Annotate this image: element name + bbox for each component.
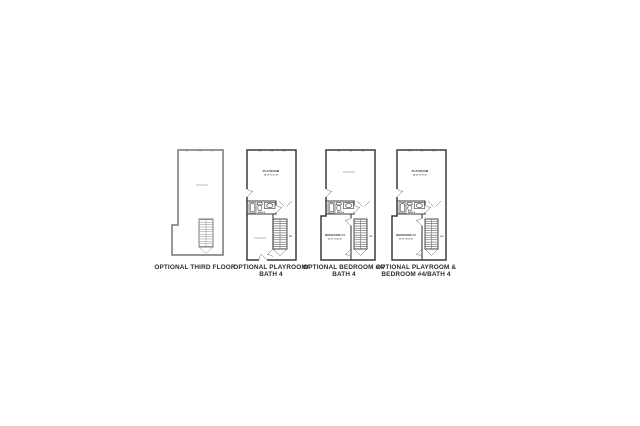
room-label-bath4: BATH 4 [258,211,266,214]
plan-optional-playroom-bedroom4-bath4: PLAYROOM 16'-4" X 17'-0" BATH 4 BEDROOM … [391,149,447,261]
room-label-storage: STORAGE [196,184,209,187]
floor-plan-sheet: STORAGE [0,0,640,426]
room-dims-bedroom4: 11'-0" X 12'-0" [399,238,413,240]
room-label-playroom: PLAYROOM [412,169,429,173]
caption-playroom-bedroom4-bath4: OPTIONAL PLAYROOM & BEDROOM #4/BATH 4 [358,265,474,279]
staircase [354,219,367,256]
room-dims-playroom: 16'-4" X 17'-0" [264,174,279,177]
room-label-bedroom4: BEDROOM #4 [325,233,345,237]
playroom-bath4-drawing: PLAYROOM 16'-4" X 17'-0" BATH 4 STORAGE … [246,149,297,261]
toilet [258,203,263,205]
room-label-bath4: BATH 4 [408,211,416,214]
toilet [337,203,342,205]
staircase [199,219,213,254]
room-label-storage: STORAGE [343,171,356,174]
stairs-direction-label: DN [289,236,293,238]
plan-optional-bedroom4-bath4: STORAGE BATH 4 BEDROOM #4 11'-0" X 12'-0… [320,149,376,261]
playroom-bedroom4-bath4-drawing: PLAYROOM 16'-4" X 17'-0" BATH 4 BEDROOM … [391,149,447,261]
caption-line: BEDROOM #4/BATH 4 [358,272,474,279]
exterior-walls [172,149,223,255]
room-label-playroom: PLAYROOM [263,169,280,173]
staircase [425,219,438,256]
plan-optional-playroom-bath4: PLAYROOM 16'-4" X 17'-0" BATH 4 STORAGE … [246,149,297,261]
room-label-storage: STORAGE [254,237,267,240]
room-dims-bedroom4: 11'-0" X 12'-0" [328,238,342,240]
toilet [408,203,413,205]
room-label-bath4: BATH 4 [337,211,345,214]
room-label-bedroom4: BEDROOM #4 [396,233,416,237]
bedroom4-bath4-drawing: STORAGE BATH 4 BEDROOM #4 11'-0" X 12'-0… [320,149,376,261]
plan-optional-third-floor: STORAGE [171,149,225,259]
stairs-direction-label: DN [369,236,373,238]
room-dims-playroom: 16'-4" X 17'-0" [413,174,428,177]
third-floor-drawing: STORAGE [171,149,225,259]
stairs-direction-label: DN [440,236,444,238]
staircase [273,219,287,256]
